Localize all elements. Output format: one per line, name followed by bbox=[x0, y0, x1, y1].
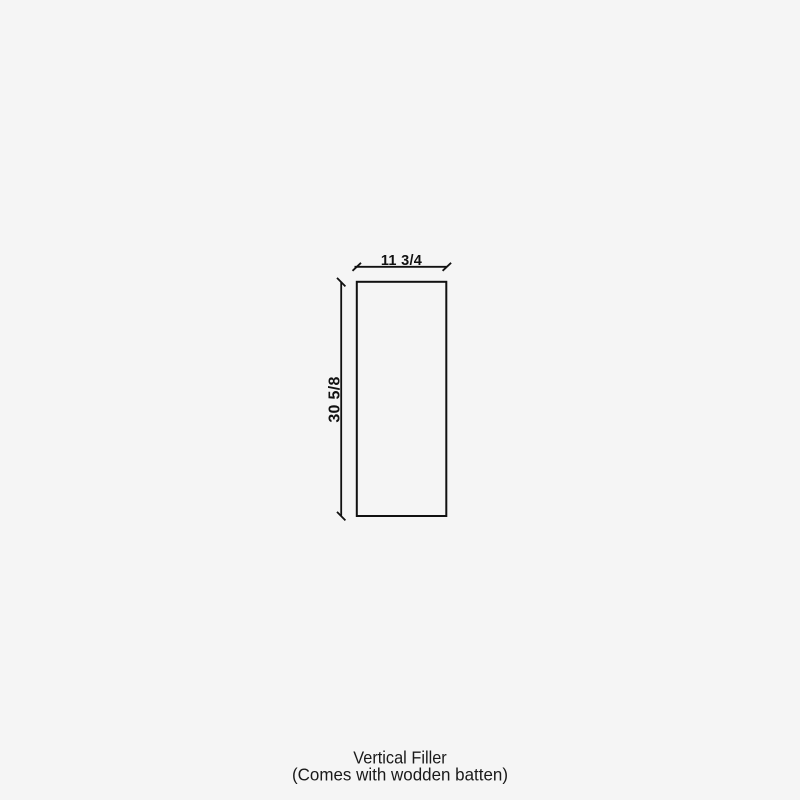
svg-text:(Comes with wodden batten): (Comes with wodden batten) bbox=[292, 764, 508, 784]
svg-text:30 5/8: 30 5/8 bbox=[327, 376, 344, 422]
svg-text:11 3/4: 11 3/4 bbox=[381, 253, 422, 269]
